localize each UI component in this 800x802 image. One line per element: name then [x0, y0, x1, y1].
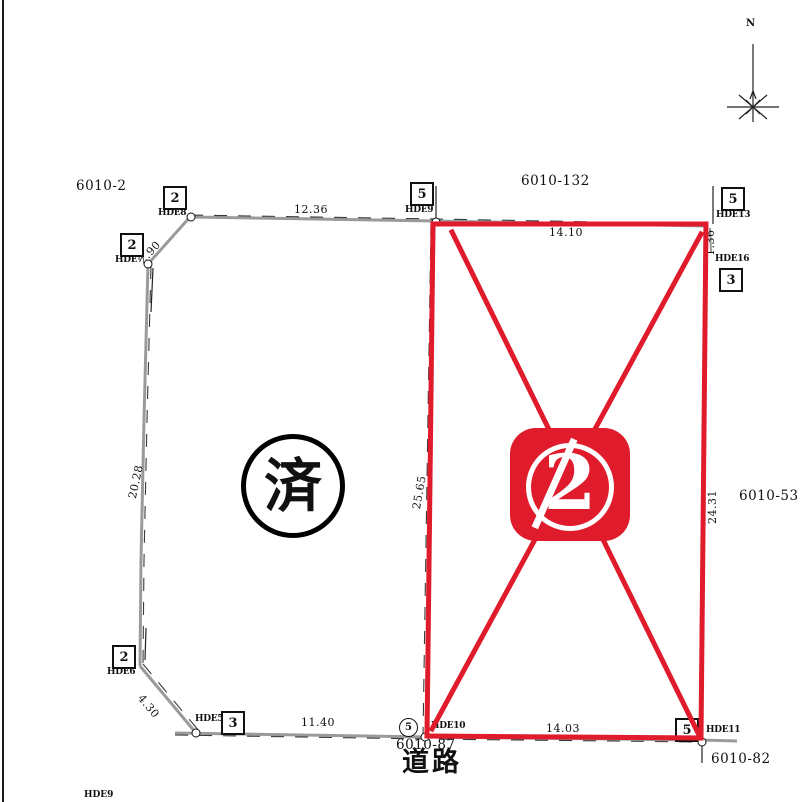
survey-marker-label: HDE10 [431, 721, 465, 731]
survey-marker-label: HDE9 [405, 205, 433, 215]
survey-marker-box: 2 [163, 186, 187, 210]
survey-marker-label: HDE16 [715, 254, 749, 264]
dimension-label: 24.31 [706, 490, 719, 524]
survey-marker-box: 5 [721, 187, 745, 211]
survey-marker-circle: 5 [399, 718, 418, 737]
boundary-point [698, 738, 707, 747]
survey-marker-box: 5 [410, 182, 434, 206]
boundary-point [144, 260, 153, 269]
sold-badge: 2 [510, 428, 630, 541]
survey-marker-box: 2 [120, 233, 144, 257]
done-stamp: 済 [241, 434, 345, 538]
parcel-label: 6010-132 [521, 173, 590, 189]
survey-marker-label: HDE8 [158, 208, 186, 218]
dimension-label: 1.36 [704, 230, 717, 257]
dimension-label: 20.28 [126, 464, 146, 500]
boundary-point [187, 213, 196, 222]
road-label: 道路 [402, 740, 462, 779]
survey-marker-label: HDE11 [706, 725, 740, 735]
survey-marker-label: HDE5 [195, 714, 223, 724]
survey-marker-box: 2 [112, 645, 136, 669]
dimension-label: 12.36 [294, 203, 328, 216]
dimension-label: 4.30 [135, 692, 162, 721]
parcel-label: 6010-82 [711, 751, 771, 767]
survey-marker-label: HDE13 [716, 210, 750, 220]
cadastral-map: 14.035 6010-26010-1326010-536010-826010-… [0, 0, 800, 802]
parcel-label: 6010-53 [739, 488, 799, 504]
survey-marker-label: HDE7 [115, 255, 143, 265]
boundary-point [192, 729, 201, 738]
dimension-label: 25.65 [410, 475, 429, 511]
boundary-point [432, 218, 441, 227]
done-stamp-text: 済 [264, 457, 322, 515]
survey-marker-label: HDE6 [107, 667, 135, 677]
survey-marker-box: 3 [221, 711, 245, 735]
survey-marker-box: 3 [719, 268, 743, 292]
map-labels: 6010-26010-1326010-536010-826010-8712.36… [0, 0, 800, 802]
parcel-label: 6010-2 [76, 178, 127, 194]
dimension-label: 14.10 [549, 226, 583, 239]
dimension-label: 11.40 [301, 716, 335, 729]
